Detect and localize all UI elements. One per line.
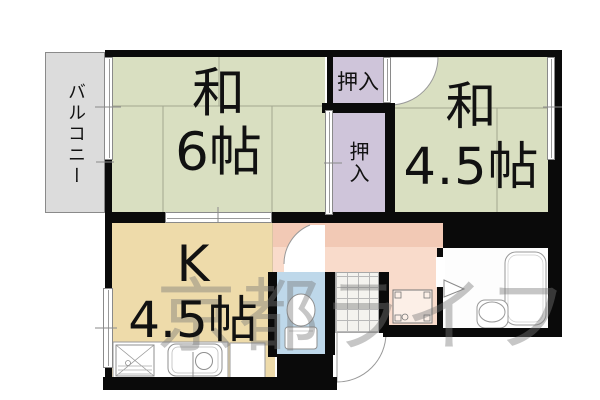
wall-left-upper <box>105 160 112 222</box>
closet-top-door <box>383 57 391 103</box>
wall-mid-band-left <box>112 212 165 223</box>
closet-bottom-label: 押入 <box>332 110 385 215</box>
wall-above-bathroom <box>443 223 562 248</box>
balcony-label: バルコニー <box>45 55 105 213</box>
room6-line2: 6帖 <box>112 123 325 182</box>
room45-line1: 和 <box>395 78 548 138</box>
japanese-room-45-label: 和 4.5帖 <box>395 78 548 198</box>
closet-bottom-text: 押入 <box>344 141 373 185</box>
kitchen-label: K 4.5帖 <box>112 236 274 348</box>
room45-window <box>547 57 555 160</box>
balcony-text: バルコニー <box>62 82 88 187</box>
wall-top <box>105 50 562 57</box>
wall-mid-band-right <box>272 212 562 223</box>
kitchen-line2: 4.5帖 <box>112 292 274 348</box>
floorplan-canvas: 京都ライフ 和 6帖 和 4.5帖 K 4.5帖 押入 押入 バルコニー <box>0 0 600 400</box>
japanese-room-6-label: 和 6帖 <box>112 64 325 182</box>
kitchen-sliding-door <box>165 212 272 223</box>
room6-line1: 和 <box>112 64 325 123</box>
kitchen-line1: K <box>112 236 274 292</box>
wall-left-kitchen <box>105 222 112 288</box>
room45-line2: 4.5帖 <box>395 138 548 198</box>
wall-closet-right <box>385 103 395 218</box>
closet-top-label: 押入 <box>333 66 383 96</box>
